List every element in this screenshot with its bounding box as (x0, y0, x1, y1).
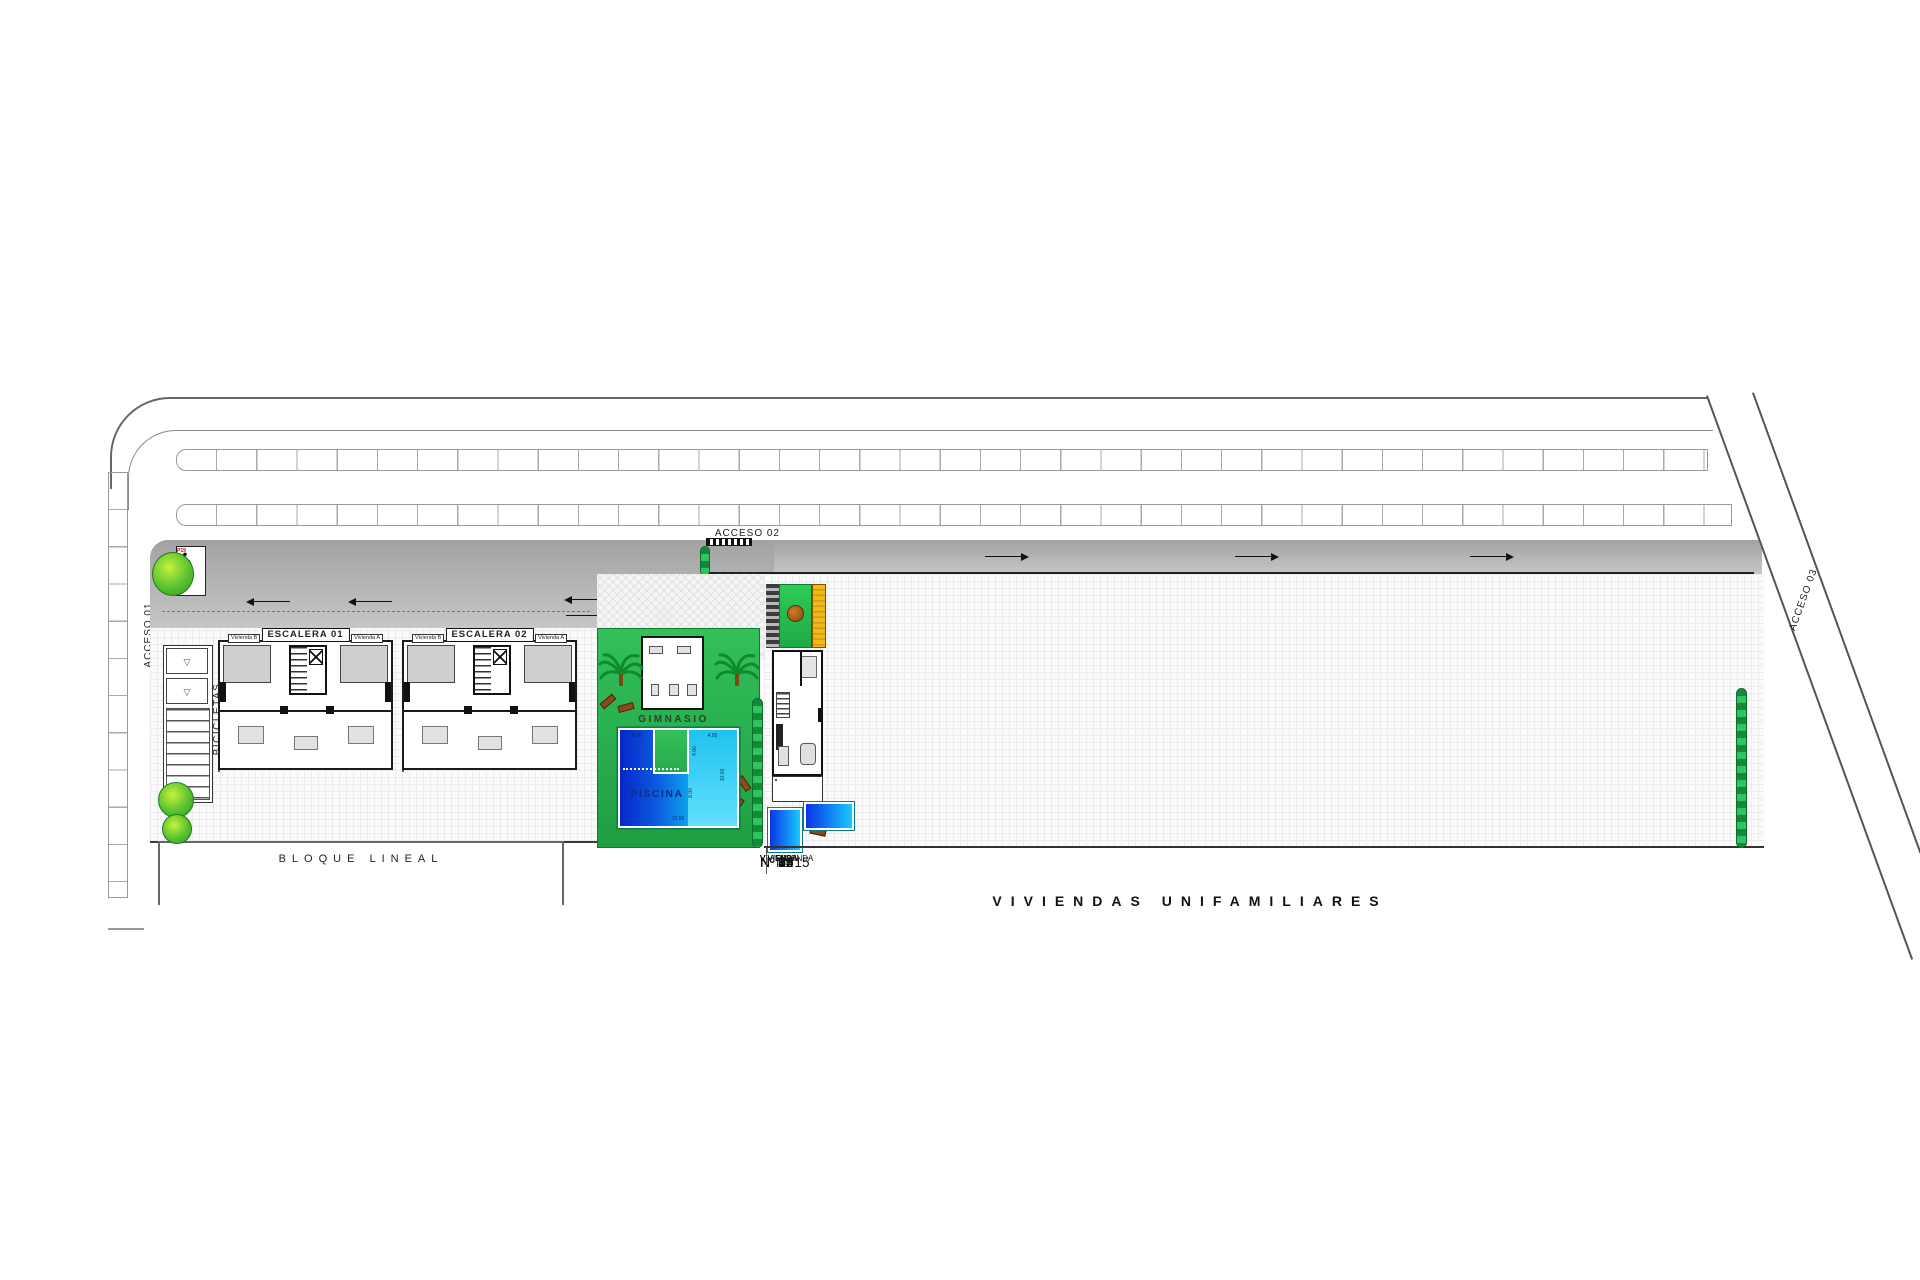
roof-terrace (407, 645, 455, 683)
tree-icon (162, 814, 192, 844)
elevator-icon (309, 649, 323, 665)
traffic-arrow-left-icon (350, 601, 392, 602)
wall (220, 710, 391, 712)
road-center-dashed-line (162, 611, 590, 612)
apartment-building-1: ESCALERA 01 Vivienda B Vivienda A (218, 640, 393, 770)
bloque-lineal-label: BLOQUE LINEAL (160, 853, 562, 865)
driveway (766, 584, 779, 648)
gym-building (641, 636, 704, 710)
villas-parcel (764, 574, 1764, 848)
pool-dim: 4.00 (692, 736, 698, 766)
piscina-label: PISCINA (626, 788, 688, 800)
unit-label: Vivienda B (228, 634, 260, 643)
storage-box: ▽ (166, 648, 208, 674)
pool-dim: 8.00 (688, 778, 694, 808)
bed (801, 656, 817, 678)
gimnasio-label: GIMNASIO (606, 714, 741, 725)
gym-equipment (651, 684, 659, 696)
street-parking-column-west (108, 472, 128, 898)
tree-icon (158, 782, 194, 818)
viviendas-unifamiliares-title: VIVIENDAS UNIFAMILIARES (900, 893, 1480, 909)
ground-terraces (218, 770, 393, 815)
gym-equipment (687, 684, 697, 696)
street-parking-row-north (176, 449, 1708, 471)
stairs (776, 692, 790, 718)
community-pool: 4.00 4.00 4.00 10.00 8.00 12.00 PISCINA (618, 728, 739, 828)
wall (800, 652, 802, 686)
front-lawn (779, 584, 812, 648)
hedge (752, 698, 763, 848)
boundary-dash (108, 928, 144, 930)
unit-label: Vivienda A (535, 634, 567, 643)
site-plan-canvas: ACCESO 01 ACCESO 02 P01 ESCALERA 1 VIVIE… (0, 0, 1920, 1280)
villa-floorplan (772, 650, 823, 776)
pool-dim: 10.00 (720, 760, 726, 790)
pool-steps (623, 768, 679, 770)
unit-label: Vivienda B (412, 634, 444, 643)
wall (818, 708, 823, 722)
private-pool (804, 802, 854, 830)
dining-table (800, 743, 816, 765)
sofa (778, 746, 789, 766)
tree-icon (787, 605, 804, 622)
traffic-arrow-right-icon (1235, 556, 1277, 557)
gym-equipment (649, 646, 663, 654)
unit-label: Vivienda A (351, 634, 383, 643)
roof-terrace (340, 645, 388, 683)
label-tick (766, 846, 767, 874)
stair-core (289, 645, 327, 695)
traffic-arrow-right-icon (985, 556, 1027, 557)
wall (404, 710, 575, 712)
palm-tree-icon (598, 652, 644, 694)
bicycle-parking-area: ▽ ▽ (163, 645, 213, 803)
villa-15: VIVIENDA Nº 15 (766, 574, 830, 886)
entrance-gate (706, 538, 752, 546)
hedge (700, 546, 710, 576)
elevator-icon (493, 649, 507, 665)
terrace (772, 776, 823, 802)
roof-terrace (524, 645, 572, 683)
hedge (1736, 688, 1747, 848)
gym-equipment (677, 646, 691, 654)
apartment-building-2: ESCALERA 02 Vivienda B Vivienda A (402, 640, 577, 770)
pool-dim: 4.00 (620, 733, 653, 739)
ground-terraces (402, 770, 577, 815)
parcel-bottom-line (764, 846, 1764, 848)
palm-tree-icon (714, 652, 760, 694)
escalera-label: ESCALERA 02 (445, 628, 533, 642)
storage-box: ▽ (166, 678, 208, 704)
traffic-arrow-right-icon (1470, 556, 1512, 557)
traffic-arrow-left-icon (248, 601, 290, 602)
stair-core (473, 645, 511, 695)
pergola (812, 584, 826, 648)
bloque-lineal-outline: BLOQUE LINEAL (158, 841, 564, 905)
gym-equipment (669, 684, 679, 696)
pool-dim: 12.00 (638, 816, 718, 822)
tree-icon (152, 552, 194, 596)
roof-terrace (223, 645, 271, 683)
street-parking-row-south (176, 504, 1732, 526)
escalera-label: ESCALERA 01 (261, 628, 349, 642)
